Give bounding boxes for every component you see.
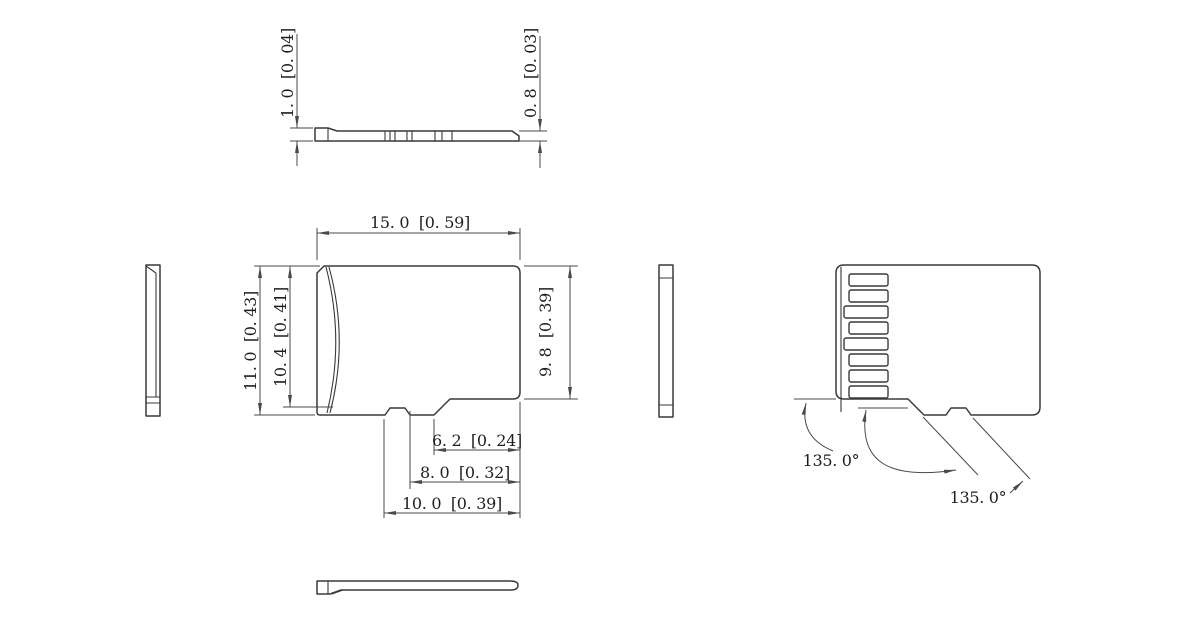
- dim-notch-b-label: 8. 0 [0. 32]: [420, 463, 510, 482]
- right-edge-outline: [659, 265, 673, 417]
- bottom-edge-view: [317, 581, 518, 594]
- front-view: [317, 266, 520, 415]
- left-edge-outline: [146, 265, 160, 416]
- angle-right-label: 135. 0°: [950, 488, 1007, 507]
- dim-notch-group: 6. 2 [0. 24] 8. 0 [0. 32] 10. 0 [0. 39]: [384, 402, 522, 518]
- dim-height-ridge-label: 10. 4 [0. 41]: [271, 287, 290, 387]
- top-edge-outline: [315, 128, 519, 141]
- bottom-edge-outline: [317, 581, 518, 594]
- contact-pad: [849, 370, 888, 382]
- right-edge-view: [659, 265, 673, 417]
- dim-height-label: 11. 0 [0. 43]: [241, 291, 260, 391]
- dim-thickness-min: 0. 8 [0. 03]: [519, 28, 547, 168]
- left-edge-ridge-lines: [146, 397, 160, 403]
- card-outline-back: [836, 265, 1040, 415]
- contact-pad: [844, 338, 888, 350]
- dim-thickness-max-label: 1. 0 [0. 04]: [278, 28, 297, 118]
- contact-pad: [849, 386, 888, 398]
- angle-dim-left: 135. 0°: [794, 399, 859, 470]
- back-view: [836, 265, 1040, 415]
- angle-dim-right: 135. 0°: [858, 408, 1030, 507]
- contact-pads: [844, 274, 888, 398]
- contact-pad: [849, 354, 888, 366]
- extension-line-diagonal-2: [973, 418, 1030, 479]
- dim-notch-c-label: 10. 0 [0. 39]: [402, 494, 502, 513]
- angle-leader-arc: [805, 403, 833, 451]
- dim-thickness-max: 1. 0 [0. 04]: [278, 28, 313, 166]
- angle-arrow: [1010, 481, 1023, 493]
- contact-pad: [849, 322, 888, 334]
- technical-drawing: 1. 0 [0. 04] 0. 8 [0. 03] 15. 0 [0. 59] …: [0, 0, 1200, 630]
- angle-left-label: 135. 0°: [803, 451, 860, 470]
- dim-height-right-label: 9. 8 [0. 39]: [536, 287, 555, 377]
- top-edge-pad-ticks: [385, 131, 452, 141]
- extension-lines: [519, 131, 547, 141]
- card-outline-front: [317, 266, 520, 415]
- angle-arc: [865, 410, 956, 473]
- contact-pad: [849, 274, 888, 286]
- dim-height-ridge: 10. 4 [0. 41]: [271, 266, 333, 407]
- dim-height-right: 9. 8 [0. 39]: [524, 266, 578, 399]
- left-edge-view: [146, 265, 160, 416]
- right-edge-inner-lines: [659, 278, 673, 405]
- contact-pad: [844, 306, 888, 318]
- dim-notch-a-label: 6. 2 [0. 24]: [432, 431, 522, 450]
- drawing-sheet: 1. 0 [0. 04] 0. 8 [0. 03] 15. 0 [0. 59] …: [0, 0, 1200, 630]
- left-edge-chamfer: [146, 266, 156, 273]
- contact-pad: [849, 290, 888, 302]
- top-edge-view: [315, 128, 519, 141]
- extension-line-diagonal-1: [923, 417, 978, 475]
- extension-lines: [290, 128, 313, 141]
- dim-thickness-min-label: 0. 8 [0. 03]: [521, 28, 540, 118]
- dim-width: 15. 0 [0. 59]: [317, 213, 520, 260]
- dim-width-label: 15. 0 [0. 59]: [370, 213, 470, 232]
